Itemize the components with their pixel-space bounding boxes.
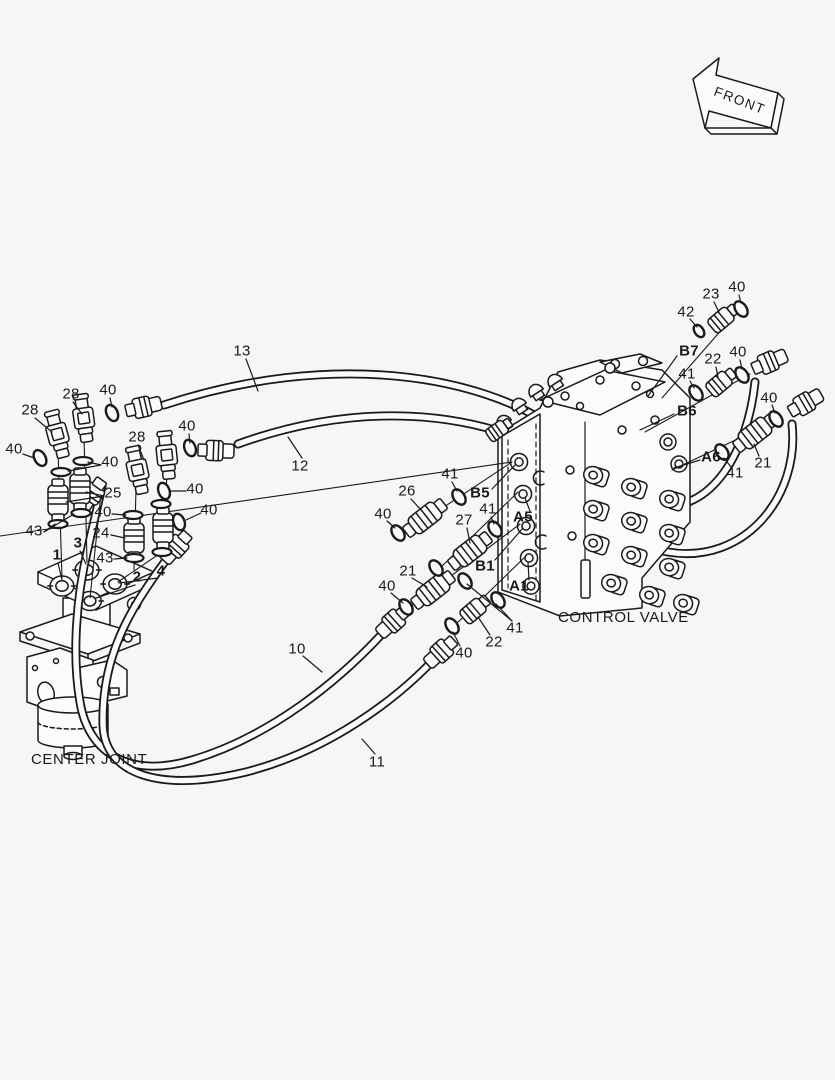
callout-22-32: 22 — [485, 635, 502, 650]
callout-40-41: 40 — [729, 345, 746, 360]
callout-25-9: 25 — [104, 486, 121, 501]
control-valve-caption: CONTROL VALVE — [558, 610, 689, 625]
callout-b6-43: B6 — [677, 404, 697, 419]
callout-a1-30: A1 — [509, 579, 529, 594]
callout-12-1: 12 — [291, 459, 308, 474]
callout-40-10: 40 — [94, 505, 111, 520]
callout-41-46: 41 — [726, 466, 743, 481]
callout-21-27: 21 — [399, 564, 416, 579]
callout-2-16: 2 — [133, 570, 142, 585]
callout-4-17: 4 — [157, 564, 166, 579]
front-arrow-icon: FRONT — [693, 58, 784, 134]
callout-21-47: 21 — [754, 456, 771, 471]
hose-11 — [103, 539, 446, 780]
callout-24-11: 24 — [92, 526, 109, 541]
callout-40-7: 40 — [178, 419, 195, 434]
callout-b7-39: B7 — [679, 344, 699, 359]
callout-42-36: 42 — [677, 305, 694, 320]
center-joint-caption: CENTER JOINT — [31, 752, 147, 767]
callout-40-19: 40 — [200, 503, 217, 518]
callout-11-35: 11 — [369, 755, 385, 770]
callout-40-8: 40 — [101, 455, 118, 470]
callout-40-28: 40 — [378, 579, 395, 594]
callout-a6-45: A6 — [701, 450, 721, 465]
callout-28-2: 28 — [21, 403, 38, 418]
callout-40-33: 40 — [455, 646, 472, 661]
callout-27-24: 27 — [455, 513, 472, 528]
callout-a5-26: A5 — [513, 510, 533, 525]
callout-40-44: 40 — [760, 391, 777, 406]
callout-3-15: 3 — [74, 536, 83, 551]
callout-26-20: 26 — [398, 484, 415, 499]
callout-28-6: 28 — [128, 430, 145, 445]
callout-41-42: 41 — [678, 367, 695, 382]
callout-43-13: 43 — [96, 551, 113, 566]
callout-43-12: 43 — [25, 524, 42, 539]
callout-40-38: 40 — [728, 280, 745, 295]
callout-41-25: 41 — [479, 502, 496, 517]
callout-1-14: 1 — [53, 548, 62, 563]
callout-b1-29: B1 — [475, 559, 495, 574]
callout-41-21: 41 — [441, 467, 458, 482]
callout-40-5: 40 — [5, 442, 22, 457]
callout-41-31: 41 — [506, 621, 523, 636]
callout-40-4: 40 — [99, 383, 116, 398]
callout-28-3: 28 — [62, 387, 79, 402]
callout-b5-22: B5 — [470, 486, 490, 501]
callout-40-23: 40 — [374, 507, 391, 522]
callout-22-40: 22 — [704, 352, 721, 367]
parts-diagram-page: FRONT 1312282840402840402540244343132440… — [0, 0, 835, 1080]
callout-23-37: 23 — [702, 287, 719, 302]
diagram-canvas: FRONT — [0, 0, 835, 1080]
callout-13-0: 13 — [233, 344, 250, 359]
callout-10-34: 10 — [288, 642, 305, 657]
callout-40-18: 40 — [186, 482, 203, 497]
